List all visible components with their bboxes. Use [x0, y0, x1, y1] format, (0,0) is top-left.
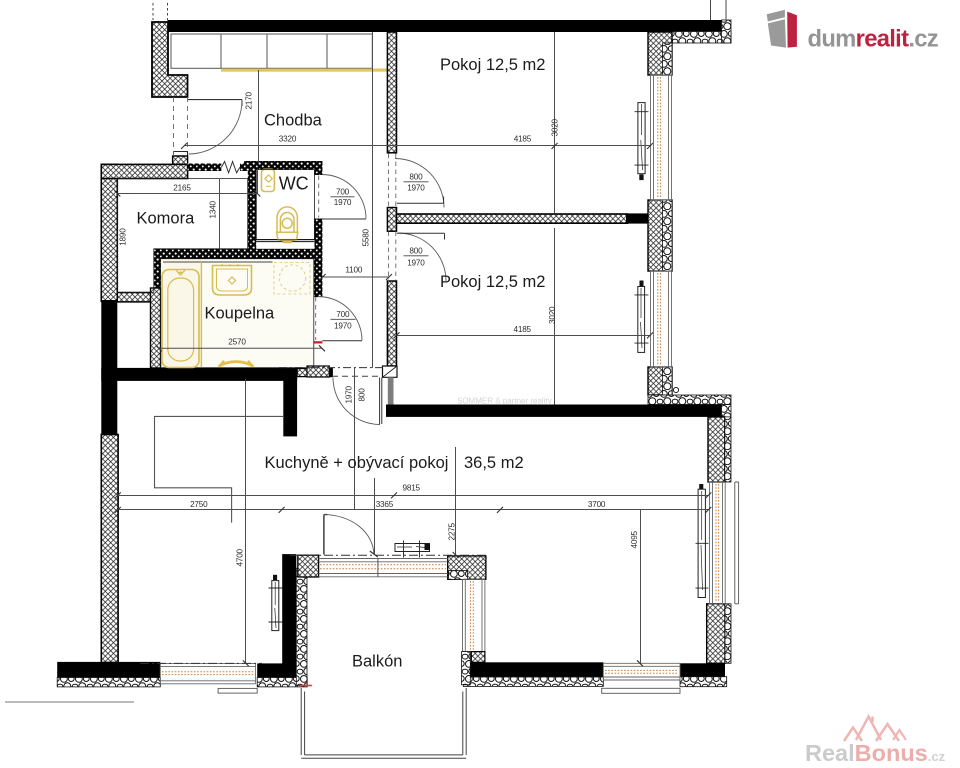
svg-text:1970: 1970 [407, 258, 425, 267]
svg-text:4700: 4700 [235, 548, 244, 566]
svg-text:4185: 4185 [514, 135, 532, 144]
svg-text:3700: 3700 [588, 500, 606, 509]
svg-text:Chodba: Chodba [264, 112, 323, 130]
svg-text:1970: 1970 [345, 385, 354, 403]
svg-text:2165: 2165 [173, 184, 191, 193]
svg-text:800: 800 [358, 388, 367, 402]
svg-text:4095: 4095 [630, 530, 639, 548]
svg-text:Pokoj 12,5 m2: Pokoj 12,5 m2 [440, 273, 545, 291]
svg-text:1970: 1970 [407, 183, 425, 192]
svg-text:1890: 1890 [119, 228, 128, 246]
svg-text:9815: 9815 [402, 484, 420, 493]
svg-text:Komora: Komora [137, 210, 196, 228]
svg-text:Balkón: Balkón [352, 653, 402, 671]
svg-text:Kuchyně + obývací pokoj: Kuchyně + obývací pokoj [265, 454, 449, 472]
svg-text:3365: 3365 [376, 500, 394, 509]
svg-text:800: 800 [409, 172, 423, 181]
svg-text:dumrealit.cz: dumrealit.cz [808, 26, 939, 53]
svg-text:2750: 2750 [190, 500, 208, 509]
svg-text:1970: 1970 [334, 321, 352, 330]
svg-text:5580: 5580 [362, 228, 371, 246]
svg-text:700: 700 [336, 310, 350, 319]
svg-text:Koupelna: Koupelna [205, 305, 276, 323]
svg-text:1970: 1970 [334, 198, 352, 207]
svg-text:3020: 3020 [551, 118, 560, 136]
svg-text:WC: WC [279, 174, 309, 194]
svg-text:2170: 2170 [245, 91, 254, 109]
svg-text:2570: 2570 [228, 338, 246, 347]
svg-text:700: 700 [336, 187, 350, 196]
svg-text:1340: 1340 [209, 200, 218, 218]
svg-text:SOMMER & partner reality: SOMMER & partner reality [457, 397, 552, 406]
svg-text:4185: 4185 [513, 325, 531, 334]
svg-text:Pokoj 12,5 m2: Pokoj 12,5 m2 [440, 56, 545, 74]
svg-text:RealBonus.cz: RealBonus.cz [805, 740, 946, 766]
svg-text:1100: 1100 [345, 265, 362, 274]
svg-text:3020: 3020 [548, 306, 557, 324]
svg-text:3320: 3320 [279, 135, 297, 144]
svg-text:800: 800 [409, 246, 423, 255]
svg-text:36,5 m2: 36,5 m2 [464, 454, 524, 472]
svg-text:2275: 2275 [447, 522, 456, 540]
